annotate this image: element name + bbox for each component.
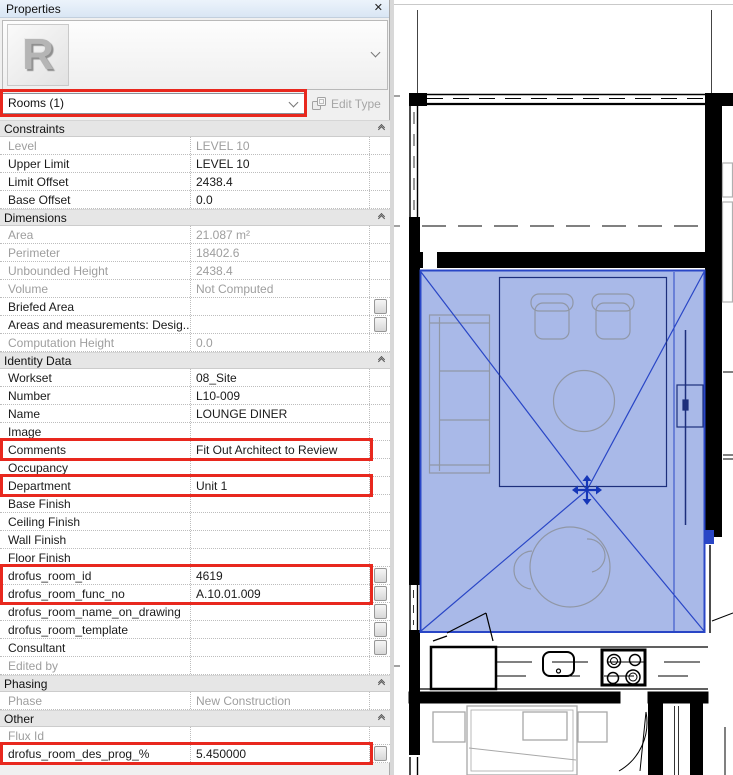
property-value: 18402.6	[190, 244, 370, 261]
cooktop	[602, 650, 645, 685]
property-label: Ceiling Finish	[0, 513, 190, 530]
row-button-cell	[370, 639, 390, 656]
property-label: Workset	[0, 369, 190, 386]
section-title: Identity Data	[4, 354, 71, 368]
property-value[interactable]	[190, 603, 370, 620]
property-label: drofus_room_template	[0, 621, 190, 638]
property-value[interactable]: 08_Site	[190, 369, 370, 386]
row-button-cell	[370, 692, 390, 709]
row-button-cell	[370, 745, 390, 762]
row-button-cell	[370, 155, 390, 172]
value-edit-button[interactable]	[374, 622, 387, 637]
type-selector-value: Rooms (1)	[8, 96, 64, 110]
property-row: Occupancy	[0, 459, 390, 477]
row-button-cell	[370, 603, 390, 620]
property-label: drofus_room_des_prog_%	[0, 745, 190, 762]
property-row: Unbounded Height2438.4	[0, 262, 390, 280]
property-value: 0.0	[190, 334, 370, 351]
property-value[interactable]: 5.450000	[190, 745, 370, 762]
type-selector-block[interactable]: R	[2, 20, 388, 90]
property-value[interactable]	[190, 513, 370, 530]
section-title: Constraints	[4, 122, 65, 136]
property-label: Perimeter	[0, 244, 190, 261]
row-button-cell	[370, 727, 390, 744]
kitchen	[409, 647, 708, 703]
property-row: drofus_room_id4619	[0, 567, 390, 585]
chevron-down-icon	[289, 98, 299, 108]
property-value: 21.087 m²	[190, 226, 370, 243]
row-button-cell	[370, 137, 390, 154]
property-row: VolumeNot Computed	[0, 280, 390, 298]
row-button-cell	[370, 549, 390, 566]
collapse-chevron-icon[interactable]	[379, 357, 384, 364]
property-row: Computation Height0.0	[0, 334, 390, 352]
property-value: LEVEL 10	[190, 137, 370, 154]
type-selector-dropdown[interactable]: Rooms (1)	[2, 93, 305, 114]
property-value[interactable]: LEVEL 10	[190, 155, 370, 172]
collapse-chevron-icon[interactable]	[379, 125, 384, 132]
right-side-walls	[705, 106, 733, 633]
property-value[interactable]: Fit Out Architect to Review	[190, 441, 370, 458]
property-row: PhaseNew Construction	[0, 692, 390, 710]
bed	[433, 706, 607, 775]
property-value: New Construction	[190, 692, 370, 709]
section-title: Dimensions	[4, 211, 67, 225]
property-label: Level	[0, 137, 190, 154]
row-button-cell	[370, 657, 390, 674]
property-row: Image	[0, 423, 390, 441]
property-value[interactable]	[190, 423, 370, 440]
edit-type-button[interactable]: Edit Type	[311, 92, 387, 115]
property-value	[190, 727, 370, 744]
properties-titlebar[interactable]: Properties ✕	[0, 0, 389, 18]
sink	[543, 652, 574, 676]
property-label: Name	[0, 405, 190, 422]
property-value: Not Computed	[190, 280, 370, 297]
close-icon[interactable]: ✕	[374, 3, 383, 14]
property-value[interactable]	[190, 639, 370, 656]
property-label: Image	[0, 423, 190, 440]
row-button-cell	[370, 316, 390, 333]
property-row: drofus_room_des_prog_%5.450000	[0, 745, 390, 763]
row-button-cell	[370, 244, 390, 261]
revit-logo-icon: R	[22, 33, 54, 77]
property-label: Comments	[0, 441, 190, 458]
row-button-cell	[370, 262, 390, 279]
revit-window: Properties ✕ R Rooms (1) Edit Type Const…	[0, 0, 733, 775]
collapse-chevron-icon[interactable]	[379, 715, 384, 722]
property-label: Computation Height	[0, 334, 190, 351]
property-row: Areas and measurements: Desig...	[0, 316, 390, 334]
section-header[interactable]: Dimensions	[0, 209, 390, 226]
property-label: Base Finish	[0, 495, 190, 512]
value-edit-button[interactable]	[374, 746, 387, 761]
property-value[interactable]	[190, 549, 370, 566]
properties-title: Properties	[6, 2, 61, 16]
row-button-cell	[370, 387, 390, 404]
type-preview-thumbnail: R	[7, 24, 69, 86]
property-label: Upper Limit	[0, 155, 190, 172]
top-room-walls	[409, 93, 733, 268]
property-row: DepartmentUnit 1	[0, 477, 390, 495]
property-label: Volume	[0, 280, 190, 297]
property-label: Limit Offset	[0, 173, 190, 190]
property-grid: ConstraintsLevelLEVEL 10Upper LimitLEVEL…	[0, 120, 390, 763]
property-row: Base Offset0.0	[0, 191, 390, 209]
property-value[interactable]	[190, 495, 370, 512]
property-row: Upper LimitLEVEL 10	[0, 155, 390, 173]
row-button-cell	[370, 298, 390, 315]
property-label: drofus_room_id	[0, 567, 190, 584]
property-label: Number	[0, 387, 190, 404]
row-button-cell	[370, 441, 390, 458]
property-row: Consultant	[0, 639, 390, 657]
properties-panel: Properties ✕ R Rooms (1) Edit Type Const…	[0, 0, 390, 775]
row-button-cell	[370, 226, 390, 243]
property-value[interactable]: L10-009	[190, 387, 370, 404]
property-value[interactable]	[190, 621, 370, 638]
row-button-cell	[370, 567, 390, 584]
row-button-cell	[370, 459, 390, 476]
room-highlight[interactable]	[421, 271, 705, 633]
value-edit-button[interactable]	[374, 299, 387, 314]
property-label: Area	[0, 226, 190, 243]
value-edit-button[interactable]	[374, 568, 387, 583]
section-header[interactable]: Other	[0, 710, 390, 727]
property-row: Limit Offset2438.4	[0, 173, 390, 191]
bedroom-door	[619, 712, 647, 771]
property-label: Wall Finish	[0, 531, 190, 548]
property-row: Flux Id	[0, 727, 390, 745]
floor-plan-view[interactable]	[390, 0, 733, 775]
section-title: Phasing	[4, 677, 47, 691]
fridge	[431, 647, 496, 689]
value-edit-button[interactable]	[374, 640, 387, 655]
bedroom	[433, 703, 725, 775]
property-row: Ceiling Finish	[0, 513, 390, 531]
property-value[interactable]	[190, 531, 370, 548]
collapse-chevron-icon[interactable]	[379, 214, 384, 221]
row-button-cell	[370, 585, 390, 602]
property-label: Unbounded Height	[0, 262, 190, 279]
property-row: CommentsFit Out Architect to Review	[0, 441, 390, 459]
property-label: Base Offset	[0, 191, 190, 208]
property-value[interactable]: A.10.01.009	[190, 585, 370, 602]
section-title: Other	[4, 712, 34, 726]
section-header[interactable]: Identity Data	[0, 352, 390, 369]
row-button-cell	[370, 405, 390, 422]
property-row: NameLOUNGE DINER	[0, 405, 390, 423]
value-edit-button[interactable]	[374, 604, 387, 619]
property-value[interactable]	[190, 316, 370, 333]
row-button-cell	[370, 173, 390, 190]
property-row: Briefed Area	[0, 298, 390, 316]
pane-separator[interactable]	[390, 0, 394, 775]
property-label: Department	[0, 477, 190, 494]
property-value[interactable]: 4619	[190, 567, 370, 584]
row-button-cell	[370, 621, 390, 638]
property-label: Floor Finish	[0, 549, 190, 566]
property-label: Flux Id	[0, 727, 190, 744]
property-row: Perimeter18402.6	[0, 244, 390, 262]
property-row: drofus_room_template	[0, 621, 390, 639]
property-value[interactable]: LOUNGE DINER	[190, 405, 370, 422]
property-label: drofus_room_func_no	[0, 585, 190, 602]
property-label: Edited by	[0, 657, 190, 674]
edit-type-label: Edit Type	[331, 97, 381, 111]
property-value[interactable]	[190, 459, 370, 476]
property-label: Phase	[0, 692, 190, 709]
property-row: drofus_room_func_noA.10.01.009	[0, 585, 390, 603]
section-header[interactable]: Constraints	[0, 120, 390, 137]
property-row: Wall Finish	[0, 531, 390, 549]
edit-type-icon	[311, 96, 327, 112]
property-value[interactable]: Unit 1	[190, 477, 370, 494]
section-header[interactable]: Phasing	[0, 675, 390, 692]
property-row: Workset08_Site	[0, 369, 390, 387]
property-value[interactable]	[190, 298, 370, 315]
property-value: 2438.4	[190, 262, 370, 279]
property-row: LevelLEVEL 10	[0, 137, 390, 155]
property-value[interactable]: 0.0	[190, 191, 370, 208]
collapse-chevron-icon[interactable]	[379, 680, 384, 687]
property-row: Base Finish	[0, 495, 390, 513]
row-button-cell	[370, 191, 390, 208]
row-button-cell	[370, 369, 390, 386]
row-button-cell	[370, 495, 390, 512]
property-label: Consultant	[0, 639, 190, 656]
property-value[interactable]: 2438.4	[190, 173, 370, 190]
property-label: drofus_room_name_on_drawing	[0, 603, 190, 620]
row-button-cell	[370, 477, 390, 494]
chevron-down-icon[interactable]	[371, 48, 381, 58]
row-button-cell	[370, 513, 390, 530]
property-row: Area21.087 m²	[0, 226, 390, 244]
property-row: drofus_room_name_on_drawing	[0, 603, 390, 621]
row-button-cell	[370, 280, 390, 297]
property-row: Floor Finish	[0, 549, 390, 567]
property-value	[190, 657, 370, 674]
property-label: Briefed Area	[0, 298, 190, 315]
value-edit-button[interactable]	[374, 586, 387, 601]
value-edit-button[interactable]	[374, 317, 387, 332]
row-button-cell	[370, 423, 390, 440]
property-row: Edited by	[0, 657, 390, 675]
row-button-cell	[370, 334, 390, 351]
property-label: Occupancy	[0, 459, 190, 476]
property-row: NumberL10-009	[0, 387, 390, 405]
row-button-cell	[370, 531, 390, 548]
property-label: Areas and measurements: Desig...	[0, 316, 190, 333]
